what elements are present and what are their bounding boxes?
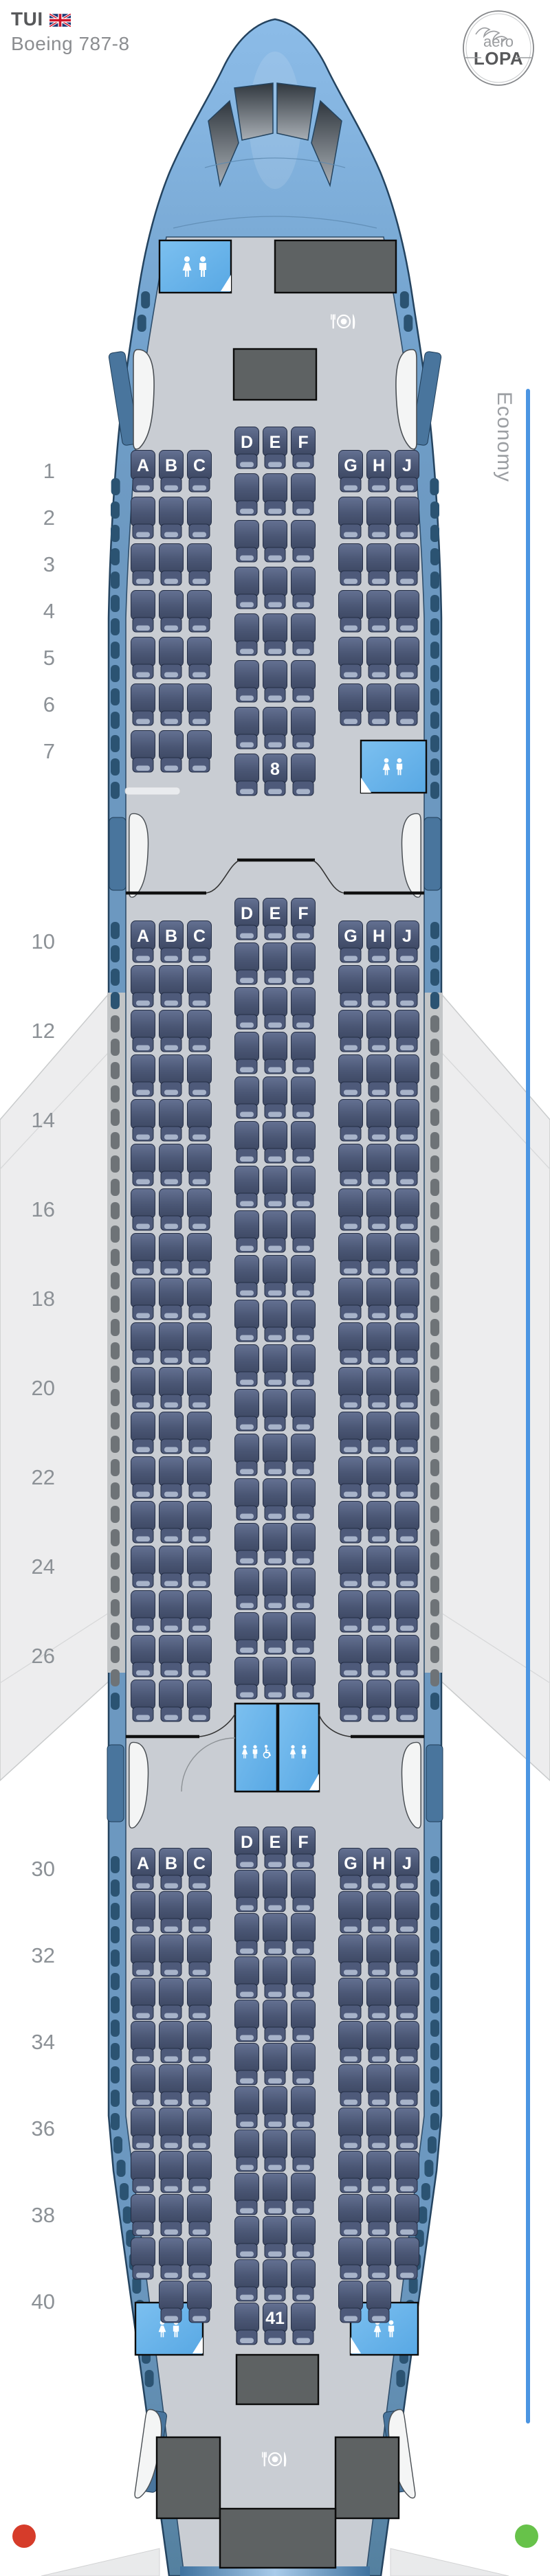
cabin-window bbox=[111, 1132, 120, 1149]
seat-32H bbox=[367, 1935, 391, 1977]
cabin-window bbox=[430, 501, 439, 519]
cabin-window bbox=[111, 1856, 120, 1873]
seat-4J bbox=[395, 591, 419, 633]
cabin-window bbox=[111, 2066, 120, 2083]
seat-4B bbox=[159, 591, 184, 633]
seat-13D bbox=[235, 1032, 259, 1074]
seat-letter-1G: G bbox=[344, 456, 357, 475]
seat-19H bbox=[367, 1323, 391, 1365]
seat-31J bbox=[395, 1892, 419, 1934]
seat-6E bbox=[263, 661, 287, 703]
seat-23B bbox=[159, 1502, 184, 1544]
cabin-window bbox=[430, 572, 439, 589]
seat-38D bbox=[235, 2173, 259, 2215]
green-dot bbox=[515, 2524, 538, 2548]
cabin-window bbox=[430, 992, 439, 1009]
seat-34J bbox=[395, 2022, 419, 2064]
seat-17J bbox=[395, 1234, 419, 1276]
cabin-window bbox=[430, 922, 439, 939]
seat-41D bbox=[235, 2303, 259, 2345]
seat-letter-30C: C bbox=[193, 1854, 206, 1873]
seat-35A bbox=[131, 2065, 155, 2107]
seat-15A bbox=[131, 1144, 155, 1186]
cabin-window bbox=[430, 1366, 439, 1383]
seat-27H bbox=[367, 1680, 391, 1722]
seat-23F bbox=[291, 1479, 316, 1521]
cabin-window bbox=[430, 1202, 439, 1219]
cabin-window bbox=[430, 1272, 439, 1289]
row-number-30: 30 bbox=[32, 1857, 55, 1881]
cabin-window bbox=[111, 548, 120, 565]
seat-5D bbox=[235, 614, 259, 656]
cabin-window bbox=[111, 1155, 120, 1173]
seat-12E bbox=[263, 988, 287, 1030]
cabin-window bbox=[424, 2160, 433, 2177]
cabin-window bbox=[430, 1085, 439, 1103]
seat-20C bbox=[188, 1368, 212, 1410]
cabin-window bbox=[430, 1506, 439, 1523]
cabin-window bbox=[428, 2136, 437, 2154]
seat-24E bbox=[263, 1524, 287, 1566]
seat-26H bbox=[367, 1636, 391, 1677]
seat-letter-1C: C bbox=[193, 456, 206, 475]
cabin-window bbox=[111, 572, 120, 589]
seat-31F bbox=[291, 1871, 316, 1912]
cabin-window bbox=[430, 665, 439, 682]
seat-26E bbox=[263, 1613, 287, 1655]
seat-letter-10H: H bbox=[373, 927, 385, 946]
seat-letter-30D: D bbox=[241, 1833, 253, 1852]
seat-39J bbox=[395, 2238, 419, 2280]
seat-6G bbox=[339, 684, 363, 726]
row-number-1: 1 bbox=[43, 459, 55, 483]
seat-39D bbox=[235, 2217, 259, 2259]
seat-16G bbox=[339, 1189, 363, 1231]
seat-33J bbox=[395, 1978, 419, 2020]
seat-5E bbox=[263, 614, 287, 656]
seat-32D bbox=[235, 1914, 259, 1956]
seat-25G bbox=[339, 1591, 363, 1633]
cabin-window bbox=[430, 1459, 439, 1476]
seat-20F bbox=[291, 1345, 316, 1387]
seat-17A bbox=[131, 1234, 155, 1276]
cabin-window bbox=[430, 2043, 439, 2060]
seat-39G bbox=[339, 2238, 363, 2280]
cabin-window bbox=[111, 1950, 120, 1967]
cabin-window bbox=[430, 1903, 439, 1920]
seat-16J bbox=[395, 1189, 419, 1231]
seat-13F bbox=[291, 1032, 316, 1074]
right-stabilizer bbox=[390, 2549, 509, 2576]
seat-25B bbox=[159, 1591, 184, 1633]
seat-36F bbox=[291, 2087, 316, 2129]
rear-left-galley bbox=[157, 2437, 220, 2518]
seat-40H bbox=[367, 2281, 391, 2323]
cabin-window bbox=[111, 2113, 120, 2130]
seat-33C bbox=[188, 1978, 212, 2020]
seat-24D bbox=[235, 1524, 259, 1566]
cabin-window bbox=[430, 1155, 439, 1173]
cabin-window bbox=[430, 2020, 439, 2037]
seat-17D bbox=[235, 1211, 259, 1253]
cabin-window bbox=[111, 2020, 120, 2037]
cabin-window bbox=[117, 2160, 126, 2177]
seat-19C bbox=[188, 1323, 212, 1365]
seat-24J bbox=[395, 1546, 419, 1588]
seat-5C bbox=[188, 637, 212, 679]
seat-22C bbox=[188, 1457, 212, 1499]
aerolopa-logo: aero LOPA bbox=[461, 8, 536, 88]
row-number-24: 24 bbox=[32, 1555, 55, 1579]
seat-38A bbox=[131, 2195, 155, 2237]
seat-20G bbox=[339, 1368, 363, 1410]
aircraft-lopa-diagram: ABCDEFGHJ8ABCDEFGHJABCDEFGHJ41 123456710… bbox=[0, 0, 550, 2576]
seat-15G bbox=[339, 1144, 363, 1186]
seat-7C bbox=[188, 731, 212, 773]
seat-32C bbox=[188, 1935, 212, 1977]
seat-21G bbox=[339, 1412, 363, 1454]
cabin-window bbox=[430, 1179, 439, 1196]
seat-12B bbox=[159, 1010, 184, 1052]
logo-lopa-text: LOPA bbox=[474, 48, 523, 69]
cabin-window bbox=[111, 1366, 120, 1383]
cabin-window bbox=[111, 1015, 120, 1032]
cabin-window bbox=[111, 1272, 120, 1289]
seat-letter-10B: B bbox=[165, 927, 177, 946]
seat-13B bbox=[159, 1055, 184, 1097]
rear-center-galley bbox=[236, 2355, 318, 2404]
seat-14H bbox=[367, 1100, 391, 1142]
seat-24F bbox=[291, 1524, 316, 1566]
cabin-window bbox=[141, 291, 150, 308]
seat-15B bbox=[159, 1144, 184, 1186]
seat-5A bbox=[131, 637, 155, 679]
cabin-window bbox=[113, 2136, 122, 2154]
seat-3A bbox=[131, 544, 155, 586]
seat-35D bbox=[235, 2044, 259, 2086]
seat-11G bbox=[339, 966, 363, 1008]
cabin-window bbox=[430, 735, 439, 752]
seat-22H bbox=[367, 1457, 391, 1499]
seat-11C bbox=[188, 966, 212, 1008]
seat-35G bbox=[339, 2065, 363, 2107]
cabin-window bbox=[111, 1576, 120, 1593]
row-label-on-seat-8: 8 bbox=[270, 760, 280, 779]
seat-24G bbox=[339, 1546, 363, 1588]
cabin-window bbox=[430, 1950, 439, 1967]
row-number-32: 32 bbox=[32, 1943, 55, 1967]
seat-20E bbox=[263, 1345, 287, 1387]
seat-35J bbox=[395, 2065, 419, 2107]
seat-3H bbox=[367, 544, 391, 586]
cabin-window bbox=[111, 1085, 120, 1103]
row-numbers: 1234567101214161820222426303234363840 bbox=[32, 459, 55, 2314]
seat-20D bbox=[235, 1345, 259, 1387]
cabin-window bbox=[111, 1879, 120, 1897]
seat-39A bbox=[131, 2238, 155, 2280]
seat-31H bbox=[367, 1892, 391, 1934]
seat-31D bbox=[235, 1871, 259, 1912]
seat-37J bbox=[395, 2151, 419, 2193]
cabin-window bbox=[430, 1109, 439, 1126]
seat-21F bbox=[291, 1390, 316, 1432]
row-number-6: 6 bbox=[43, 692, 55, 716]
row-label-on-seat-41: 41 bbox=[265, 2309, 285, 2328]
seat-13E bbox=[263, 1032, 287, 1074]
seat-35E bbox=[263, 2044, 287, 2086]
cabin-window bbox=[111, 1202, 120, 1219]
seat-3J bbox=[395, 544, 419, 586]
page-header: TUI Boeing 787-8 bbox=[11, 8, 130, 55]
cabin-window bbox=[430, 1669, 439, 1686]
cabin-window bbox=[111, 1623, 120, 1640]
seat-letter-1H: H bbox=[373, 456, 385, 475]
seat-38F bbox=[291, 2173, 316, 2215]
seat-12F bbox=[291, 988, 316, 1030]
seat-18C bbox=[188, 1278, 212, 1320]
seat-12J bbox=[395, 1010, 419, 1052]
aerolopa-seatmap-page: TUI Boeing 787-8 aero LOPA Economy bbox=[0, 0, 550, 2576]
seat-14J bbox=[395, 1100, 419, 1142]
seat-31E bbox=[263, 1871, 287, 1912]
cabin-window bbox=[111, 1412, 120, 1430]
seat-5H bbox=[367, 637, 391, 679]
seat-14G bbox=[339, 1100, 363, 1142]
seat-31G bbox=[339, 1892, 363, 1934]
seat-rows: ABCDEFGHJ8ABCDEFGHJABCDEFGHJ41 bbox=[131, 427, 419, 2345]
seat-3C bbox=[188, 544, 212, 586]
cabin-window bbox=[430, 969, 439, 986]
seat-6D bbox=[235, 661, 259, 703]
cabin-window bbox=[111, 1646, 120, 1663]
cabin-window bbox=[430, 478, 439, 495]
cabin-window bbox=[430, 1482, 439, 1500]
seat-36J bbox=[395, 2108, 419, 2150]
cabin-window bbox=[111, 1482, 120, 1500]
cabin-window bbox=[111, 1039, 120, 1056]
seat-17F bbox=[291, 1211, 316, 1253]
seat-5B bbox=[159, 637, 184, 679]
seat-5F bbox=[291, 614, 316, 656]
cabin-window bbox=[111, 618, 120, 635]
seat-33H bbox=[367, 1978, 391, 2020]
seat-letter-30H: H bbox=[373, 1854, 385, 1873]
row-number-4: 4 bbox=[43, 599, 55, 623]
seat-38C bbox=[188, 2195, 212, 2237]
seat-21C bbox=[188, 1412, 212, 1454]
cabin-window bbox=[111, 501, 120, 519]
seat-14F bbox=[291, 1077, 316, 1119]
seat-27A bbox=[131, 1680, 155, 1722]
seat-19D bbox=[235, 1300, 259, 1342]
seat-18E bbox=[263, 1256, 287, 1298]
seat-2J bbox=[395, 497, 419, 539]
seat-40D bbox=[235, 2260, 259, 2302]
seat-14C bbox=[188, 1100, 212, 1142]
seat-letter-30A: A bbox=[137, 1854, 149, 1873]
seat-7F bbox=[291, 708, 316, 749]
seat-2D bbox=[235, 474, 259, 516]
cabin-window bbox=[111, 642, 120, 659]
seat-6J bbox=[395, 684, 419, 726]
seat-3E bbox=[263, 521, 287, 563]
seat-17H bbox=[367, 1234, 391, 1276]
seat-15F bbox=[291, 1122, 316, 1164]
seat-11D bbox=[235, 943, 259, 985]
seat-21J bbox=[395, 1412, 419, 1454]
seat-32J bbox=[395, 1935, 419, 1977]
seat-16F bbox=[291, 1166, 316, 1208]
seat-23C bbox=[188, 1502, 212, 1544]
seat-letter-1B: B bbox=[165, 456, 177, 475]
seat-38H bbox=[367, 2195, 391, 2237]
seat-34F bbox=[291, 2000, 316, 2042]
row-number-14: 14 bbox=[32, 1108, 55, 1132]
seat-2F bbox=[291, 474, 316, 516]
seat-24H bbox=[367, 1546, 391, 1588]
cabin-window bbox=[111, 1926, 120, 1943]
seat-12G bbox=[339, 1010, 363, 1052]
seat-26G bbox=[339, 1636, 363, 1677]
seat-34G bbox=[339, 2022, 363, 2064]
cabin-window bbox=[111, 1459, 120, 1476]
seat-34H bbox=[367, 2022, 391, 2064]
seat-40G bbox=[339, 2281, 363, 2323]
seat-37A bbox=[131, 2151, 155, 2193]
cabin-window bbox=[111, 1693, 120, 1710]
seat-40B bbox=[159, 2281, 184, 2323]
seat-36C bbox=[188, 2108, 212, 2150]
row-number-38: 38 bbox=[32, 2203, 55, 2227]
seat-16C bbox=[188, 1189, 212, 1231]
row-number-16: 16 bbox=[32, 1197, 55, 1221]
seat-25H bbox=[367, 1591, 391, 1633]
cabin-window bbox=[111, 478, 120, 495]
cabin-window bbox=[111, 1342, 120, 1359]
seat-36B bbox=[159, 2108, 184, 2150]
cabin-window bbox=[430, 1996, 439, 2013]
seat-27F bbox=[291, 1658, 316, 1699]
cabin-window bbox=[430, 2090, 439, 2107]
seat-21E bbox=[263, 1390, 287, 1432]
seat-11J bbox=[395, 966, 419, 1008]
seat-34D bbox=[235, 2000, 259, 2042]
row-number-18: 18 bbox=[32, 1287, 55, 1311]
cabin-window bbox=[418, 2206, 427, 2224]
row-number-7: 7 bbox=[43, 739, 55, 763]
seat-37E bbox=[263, 2130, 287, 2172]
seat-37G bbox=[339, 2151, 363, 2193]
cabin-window bbox=[430, 1856, 439, 1873]
seat-39B bbox=[159, 2238, 184, 2280]
seat-39H bbox=[367, 2238, 391, 2280]
row-number-40: 40 bbox=[32, 2290, 55, 2314]
seat-4F bbox=[291, 567, 316, 609]
seat-37C bbox=[188, 2151, 212, 2193]
seat-2A bbox=[131, 497, 155, 539]
seat-19G bbox=[339, 1323, 363, 1365]
seat-13A bbox=[131, 1055, 155, 1097]
seat-23J bbox=[395, 1502, 419, 1544]
seat-17B bbox=[159, 1234, 184, 1276]
seat-27G bbox=[339, 1680, 363, 1722]
cabin-window bbox=[430, 758, 439, 776]
cabin-window bbox=[137, 315, 146, 332]
cabin-window bbox=[111, 525, 120, 542]
cabin-window bbox=[430, 1693, 439, 1710]
seat-22J bbox=[395, 1457, 419, 1499]
row-number-26: 26 bbox=[32, 1644, 55, 1668]
seat-23E bbox=[263, 1479, 287, 1521]
seat-letter-1F: F bbox=[298, 433, 308, 452]
seat-18A bbox=[131, 1278, 155, 1320]
seat-23A bbox=[131, 1502, 155, 1544]
seat-5J bbox=[395, 637, 419, 679]
seat-4G bbox=[339, 591, 363, 633]
seat-2G bbox=[339, 497, 363, 539]
seat-24C bbox=[188, 1546, 212, 1588]
cabin-window bbox=[430, 595, 439, 612]
seat-11B bbox=[159, 966, 184, 1008]
cabin-window bbox=[430, 1576, 439, 1593]
seat-33E bbox=[263, 1957, 287, 1999]
seat-26A bbox=[131, 1636, 155, 1677]
cabin-window bbox=[111, 1506, 120, 1523]
forward-right-lavatory bbox=[361, 741, 426, 793]
seat-3D bbox=[235, 521, 259, 563]
seat-13C bbox=[188, 1055, 212, 1097]
seat-letter-10F: F bbox=[298, 904, 308, 923]
seat-25J bbox=[395, 1591, 419, 1633]
seat-38B bbox=[159, 2195, 184, 2237]
seat-letter-1E: E bbox=[269, 433, 281, 452]
seat-4C bbox=[188, 591, 212, 633]
cabin-window bbox=[430, 642, 439, 659]
seat-25A bbox=[131, 1591, 155, 1633]
seat-31A bbox=[131, 1892, 155, 1934]
cabin-window bbox=[430, 1319, 439, 1336]
seat-6B bbox=[159, 684, 184, 726]
seat-41F bbox=[291, 2303, 316, 2345]
seat-25F bbox=[291, 1568, 316, 1610]
row-number-10: 10 bbox=[32, 929, 55, 953]
cabin-window bbox=[111, 969, 120, 986]
cabin-window bbox=[430, 1623, 439, 1640]
cabin-window bbox=[430, 945, 439, 962]
seat-23G bbox=[339, 1502, 363, 1544]
cabin-window bbox=[111, 758, 120, 776]
row-number-2: 2 bbox=[43, 506, 55, 530]
seat-11E bbox=[263, 943, 287, 985]
seat-18G bbox=[339, 1278, 363, 1320]
airline-name: TUI bbox=[11, 8, 43, 30]
seat-15E bbox=[263, 1122, 287, 1164]
seat-40C bbox=[188, 2281, 212, 2323]
seat-36E bbox=[263, 2087, 287, 2129]
seat-32G bbox=[339, 1935, 363, 1977]
seat-26J bbox=[395, 1636, 419, 1677]
cabin-window bbox=[111, 1109, 120, 1126]
cabin-window bbox=[111, 1225, 120, 1243]
seat-40F bbox=[291, 2260, 316, 2302]
seat-36A bbox=[131, 2108, 155, 2150]
forward-center-galley bbox=[234, 349, 316, 400]
seat-7A bbox=[131, 731, 155, 773]
rear-right-galley bbox=[335, 2437, 399, 2518]
seat-34A bbox=[131, 2022, 155, 2064]
seat-3B bbox=[159, 544, 184, 586]
seat-15J bbox=[395, 1144, 419, 1186]
